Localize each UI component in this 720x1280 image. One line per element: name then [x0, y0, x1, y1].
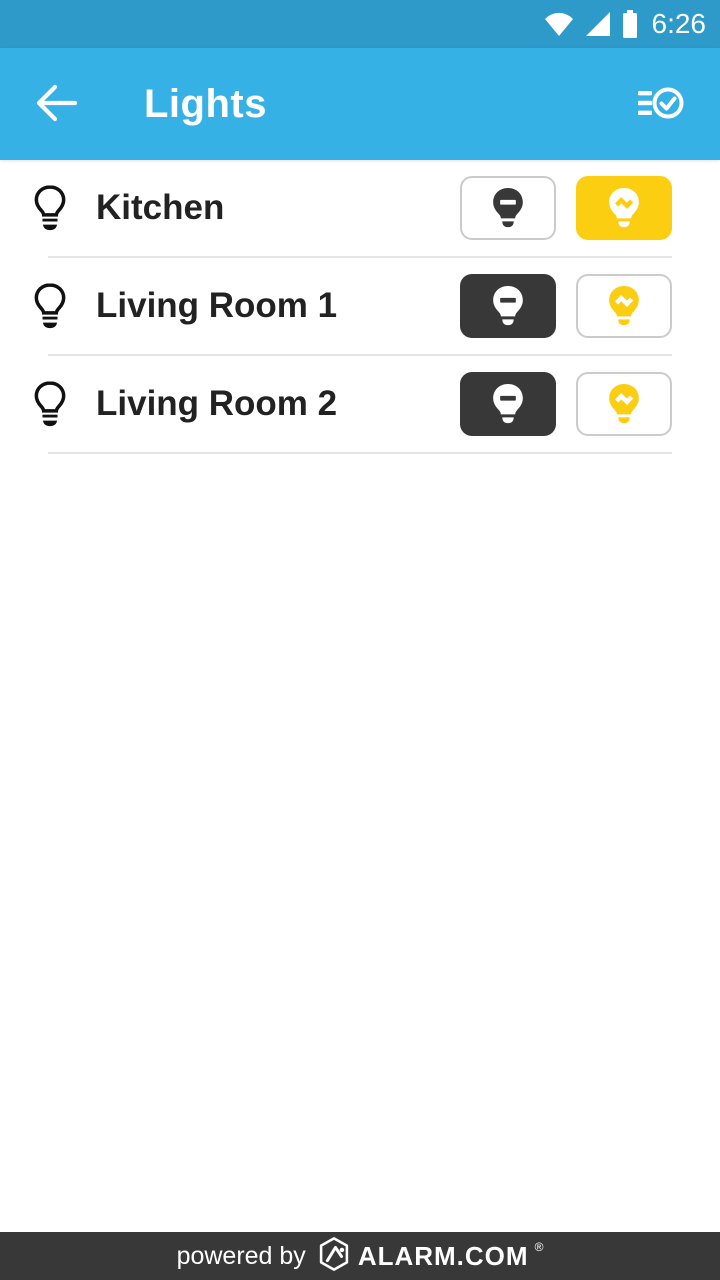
light-row-living-room-2: Living Room 2 — [0, 356, 720, 452]
light-bulb-outline-icon — [28, 280, 72, 332]
light-on-button[interactable] — [576, 372, 672, 436]
content-empty-area — [0, 454, 720, 1232]
bulb-off-icon — [488, 381, 528, 427]
light-toggle-group — [460, 372, 672, 436]
light-off-button[interactable] — [460, 274, 556, 338]
trademark-symbol: ® — [535, 1240, 544, 1254]
light-bulb-outline-icon — [28, 182, 72, 234]
light-bulb-outline-icon — [28, 378, 72, 430]
status-bar: 6:26 — [0, 0, 720, 48]
light-name: Living Room 1 — [96, 286, 460, 326]
light-on-button[interactable] — [576, 176, 672, 240]
light-off-button[interactable] — [460, 372, 556, 436]
alarm-com-brand: ALARM.COM ® — [316, 1236, 544, 1277]
light-toggle-group — [460, 176, 672, 240]
arrow-left-icon — [33, 83, 79, 126]
alarm-com-hexagon-logo-icon — [316, 1236, 352, 1277]
multi-select-button[interactable] — [628, 76, 692, 132]
bulb-on-icon — [604, 185, 644, 231]
bulb-off-icon — [488, 185, 528, 231]
light-name: Kitchen — [96, 188, 460, 228]
light-toggle-group — [460, 274, 672, 338]
wifi-icon — [543, 11, 575, 37]
light-off-button[interactable] — [460, 176, 556, 240]
bulb-on-icon — [604, 283, 644, 329]
lights-list: Kitchen — [0, 160, 720, 454]
back-button[interactable] — [28, 76, 84, 132]
brand-name: ALARM.COM — [358, 1241, 529, 1272]
bulb-off-icon — [488, 283, 528, 329]
app-screen: 6:26 Lights — [0, 0, 720, 1280]
footer: powered by ALARM.COM ® — [0, 1232, 720, 1280]
light-row-kitchen: Kitchen — [0, 160, 720, 256]
status-time: 6:26 — [652, 8, 707, 40]
bulb-on-icon — [604, 381, 644, 427]
battery-icon — [621, 9, 639, 39]
light-on-button[interactable] — [576, 274, 672, 338]
page-title: Lights — [144, 82, 267, 127]
light-name: Living Room 2 — [96, 384, 460, 424]
multi-select-checklist-icon — [634, 83, 686, 126]
app-bar: Lights — [0, 48, 720, 160]
light-row-living-room-1: Living Room 1 — [0, 258, 720, 354]
powered-by-label: powered by — [177, 1242, 306, 1271]
cell-signal-icon — [584, 11, 612, 37]
